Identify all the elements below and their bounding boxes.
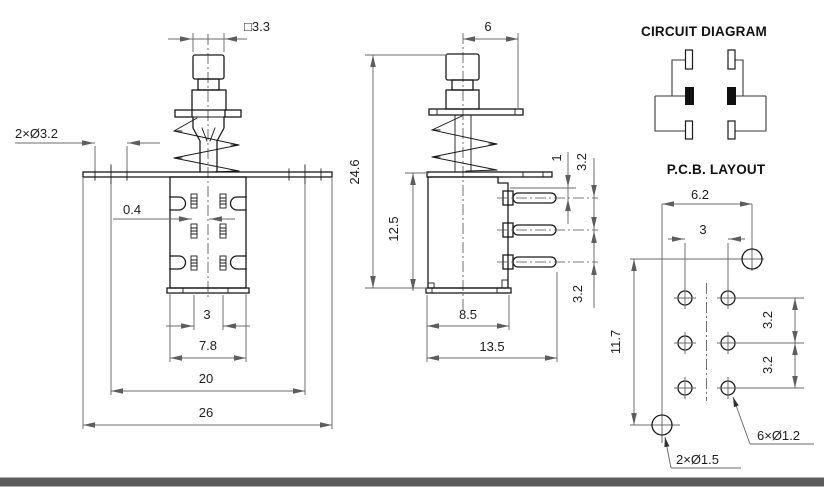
dim-label-stem-offset: 6	[484, 19, 491, 34]
front-shaft	[193, 117, 224, 172]
side-view: 6 24.6 12.5 1 3.2 3.2 8.5	[347, 19, 598, 362]
side-button-cap	[446, 54, 479, 80]
switch-datasheet-drawing: □3.3 2×Ø3.2 0.4 3 7.8 20	[0, 0, 824, 492]
dim-label-mount-spacing: 20	[199, 371, 213, 386]
circuit-terminal	[686, 50, 693, 69]
side-terminal-pins	[497, 191, 598, 269]
front-wing-right	[225, 110, 241, 117]
circuit-common-contact	[685, 87, 694, 105]
dim-label-pin-pitch-upper: 3.2	[574, 153, 589, 171]
side-button-neck	[452, 80, 473, 90]
side-flange-plate	[427, 172, 552, 177]
front-wing-left	[175, 110, 192, 117]
dim-label-holes: 2×Ø3.2	[15, 126, 58, 141]
side-spring	[432, 116, 497, 171]
circuit-diagram-title: CIRCUIT DIAGRAM	[641, 24, 767, 39]
label-mount-holes: 2×Ø1.5	[676, 452, 719, 467]
side-base-strip	[426, 288, 511, 293]
dim-label-total-height: 24.6	[347, 159, 362, 184]
front-dimensions: □3.3 2×Ø3.2 0.4 3 7.8 20	[15, 19, 332, 429]
front-bushing	[192, 90, 226, 110]
dim-label-total-depth: 13.5	[479, 339, 504, 354]
circuit-terminal	[728, 50, 735, 69]
front-button-neck	[198, 79, 219, 90]
front-mount-flange	[83, 172, 332, 177]
side-dimensions: 6 24.6 12.5 1 3.2 3.2 8.5	[347, 19, 594, 362]
dim-label-hole-span-y: 11.7	[608, 330, 623, 354]
dim-label-body-depth: 8.5	[459, 307, 477, 322]
dim-label-pin-offset: 0.4	[123, 202, 141, 217]
dim-label-body-width: 7.8	[199, 338, 217, 353]
dim-label-square: □3.3	[244, 19, 270, 34]
dim-label-pin-pitch-lower: 3.2	[570, 285, 585, 303]
dim-label-pin-pitch: 3	[203, 307, 210, 322]
dim-label-pad-pitch-y1: 3.2	[760, 311, 775, 329]
circuit-wires	[655, 60, 766, 131]
footer-bar	[0, 478, 824, 487]
circuit-diagram: CIRCUIT DIAGRAM	[641, 24, 767, 139]
side-collar-plate	[429, 109, 523, 115]
dim-label-pad-pitch-y2: 3.2	[760, 356, 775, 374]
dim-label-body-height: 12.5	[386, 216, 401, 241]
technical-drawing-canvas: □3.3 2×Ø3.2 0.4 3 7.8 20	[0, 0, 824, 492]
pcb-layout-title: P.C.B. LAYOUT	[667, 162, 766, 177]
label-pad-holes: 6×Ø1.2	[757, 428, 800, 443]
front-spring	[174, 118, 239, 172]
circuit-common-contact	[727, 87, 736, 105]
side-case-body	[428, 177, 508, 288]
dim-label-pin-root: 1	[549, 154, 564, 161]
front-view: □3.3 2×Ø3.2 0.4 3 7.8 20	[15, 19, 332, 429]
dim-label-hole-span-x: 6.2	[691, 187, 709, 202]
pcb-layout: P.C.B. LAYOUT 6.2 3 11.7	[608, 162, 814, 468]
side-bushing	[446, 90, 479, 109]
circuit-terminal	[686, 121, 693, 139]
front-button-cap	[193, 55, 224, 79]
circuit-terminal	[728, 121, 735, 139]
front-terminal-pins	[191, 194, 226, 270]
dim-label-flange-width: 26	[199, 405, 213, 420]
pcb-dimensions: 6.2 3 11.7 3.2 3.2 6×Ø1.2 2×Ø1.5	[608, 187, 814, 468]
dim-label-pad-pitch-x: 3	[699, 222, 706, 237]
